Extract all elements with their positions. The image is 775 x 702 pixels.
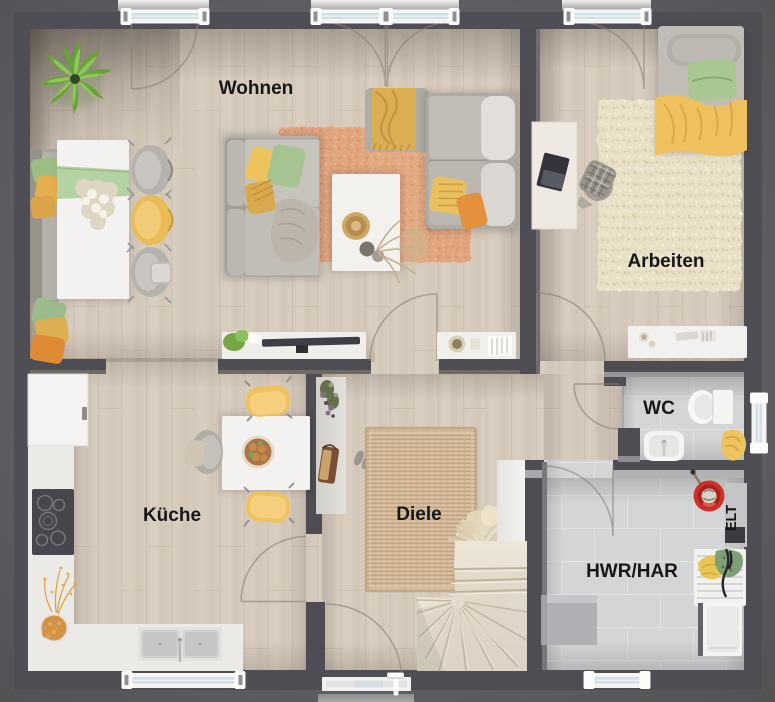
svg-text:Wohnen: Wohnen	[219, 78, 294, 99]
svg-text:Arbeiten: Arbeiten	[627, 251, 704, 272]
svg-text:WC: WC	[643, 398, 675, 419]
svg-text:ELT: ELT	[724, 505, 740, 531]
svg-text:Küche: Küche	[143, 505, 201, 526]
svg-text:HWR/HAR: HWR/HAR	[586, 561, 678, 582]
svg-text:Diele: Diele	[396, 504, 441, 525]
